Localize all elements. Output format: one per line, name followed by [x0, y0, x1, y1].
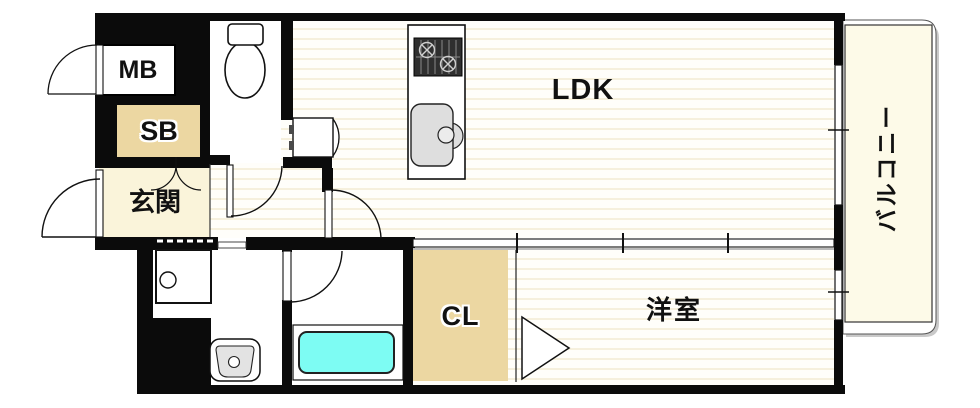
wall-hall-top	[283, 157, 332, 168]
bathroom-door-leaf	[283, 251, 291, 301]
ldk-door-leaf	[325, 190, 332, 238]
balcony	[843, 20, 939, 337]
ldk-balcony-window	[835, 65, 842, 205]
vanity-sink-icon	[210, 339, 260, 381]
wall-bottom	[137, 385, 845, 394]
ldk-floor	[281, 21, 834, 238]
wall-bathroom-right	[403, 240, 413, 385]
shoe-box-fill	[117, 105, 200, 157]
wall-toilet-bottom	[205, 155, 230, 165]
hall-floor	[208, 163, 322, 238]
kitchen-counter	[408, 25, 465, 179]
toilet-door-leaf	[227, 165, 233, 217]
stove-icon	[414, 38, 462, 76]
wall-corridor-bottom-left	[95, 237, 218, 250]
wall-bathroom-left-lower	[282, 300, 292, 385]
balcony-floor	[845, 25, 932, 322]
wall-ldk-door-top	[322, 168, 333, 192]
wall-washroom-block	[137, 318, 211, 388]
floor-plan-drawing	[0, 0, 980, 408]
floor-plan: MB SB 玄関 LDK CL 洋室 バルコニー	[0, 0, 980, 408]
entrance-door-leaf	[96, 170, 103, 237]
wall-bathroom-left-upper	[282, 240, 292, 252]
bathtub-icon	[293, 325, 403, 380]
western-room-window	[835, 270, 842, 320]
wall-right-lower	[834, 320, 843, 388]
washing-machine-pan-icon	[156, 250, 211, 303]
washroom-threshold	[218, 242, 246, 248]
mb-door-leaf	[96, 45, 103, 95]
closet-fill	[413, 249, 508, 381]
toilet-icon	[225, 24, 265, 98]
genkan-floor	[99, 163, 210, 238]
entrance-door-arc	[42, 179, 100, 237]
wall-corridor-bottom-right	[246, 237, 415, 250]
wall-right-middle	[834, 205, 843, 270]
meter-box	[100, 45, 175, 95]
water-heater-icon	[289, 118, 339, 157]
wall-right-upper	[834, 13, 843, 65]
mb-door-arc	[48, 45, 97, 94]
wall-toilet-right	[281, 13, 293, 120]
